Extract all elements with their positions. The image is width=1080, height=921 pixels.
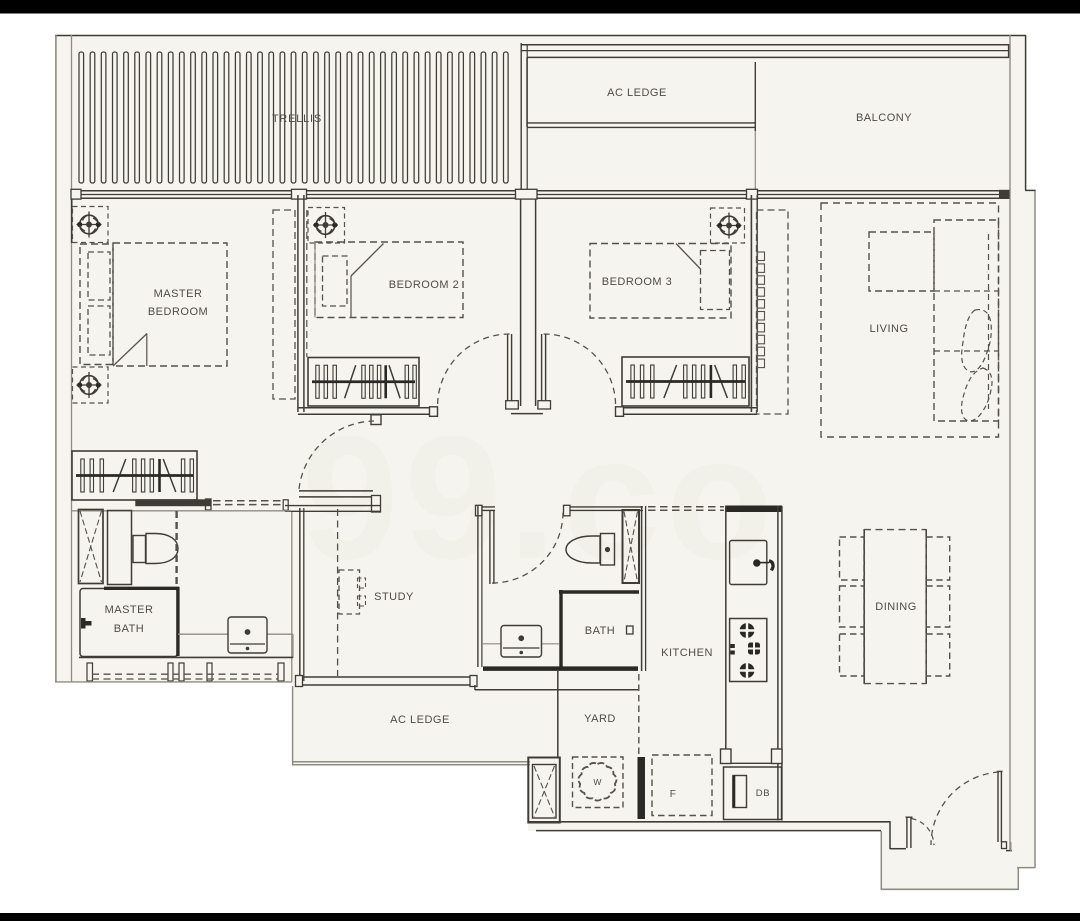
svg-text:MASTER: MASTER bbox=[154, 288, 203, 300]
svg-text:YARD: YARD bbox=[584, 713, 616, 725]
svg-text:KITCHEN: KITCHEN bbox=[661, 647, 713, 659]
svg-text:STUDY: STUDY bbox=[374, 591, 414, 603]
svg-text:BEDROOM 3: BEDROOM 3 bbox=[602, 276, 673, 288]
svg-text:TRELLIS: TRELLIS bbox=[272, 113, 322, 125]
svg-text:BEDROOM 2: BEDROOM 2 bbox=[389, 279, 460, 291]
svg-text:BALCONY: BALCONY bbox=[856, 112, 912, 124]
svg-text:F: F bbox=[670, 789, 677, 800]
svg-text:AC LEDGE: AC LEDGE bbox=[607, 87, 667, 99]
svg-text:DB: DB bbox=[756, 788, 770, 799]
svg-text:BATH: BATH bbox=[585, 625, 616, 637]
svg-text:W: W bbox=[593, 777, 601, 787]
svg-text:BEDROOM: BEDROOM bbox=[148, 306, 208, 318]
svg-text:DINING: DINING bbox=[875, 601, 917, 613]
svg-text:AC LEDGE: AC LEDGE bbox=[390, 714, 450, 726]
svg-text:MASTER: MASTER bbox=[105, 604, 154, 616]
svg-text:LIVING: LIVING bbox=[869, 323, 908, 335]
svg-text:BATH: BATH bbox=[114, 623, 145, 635]
